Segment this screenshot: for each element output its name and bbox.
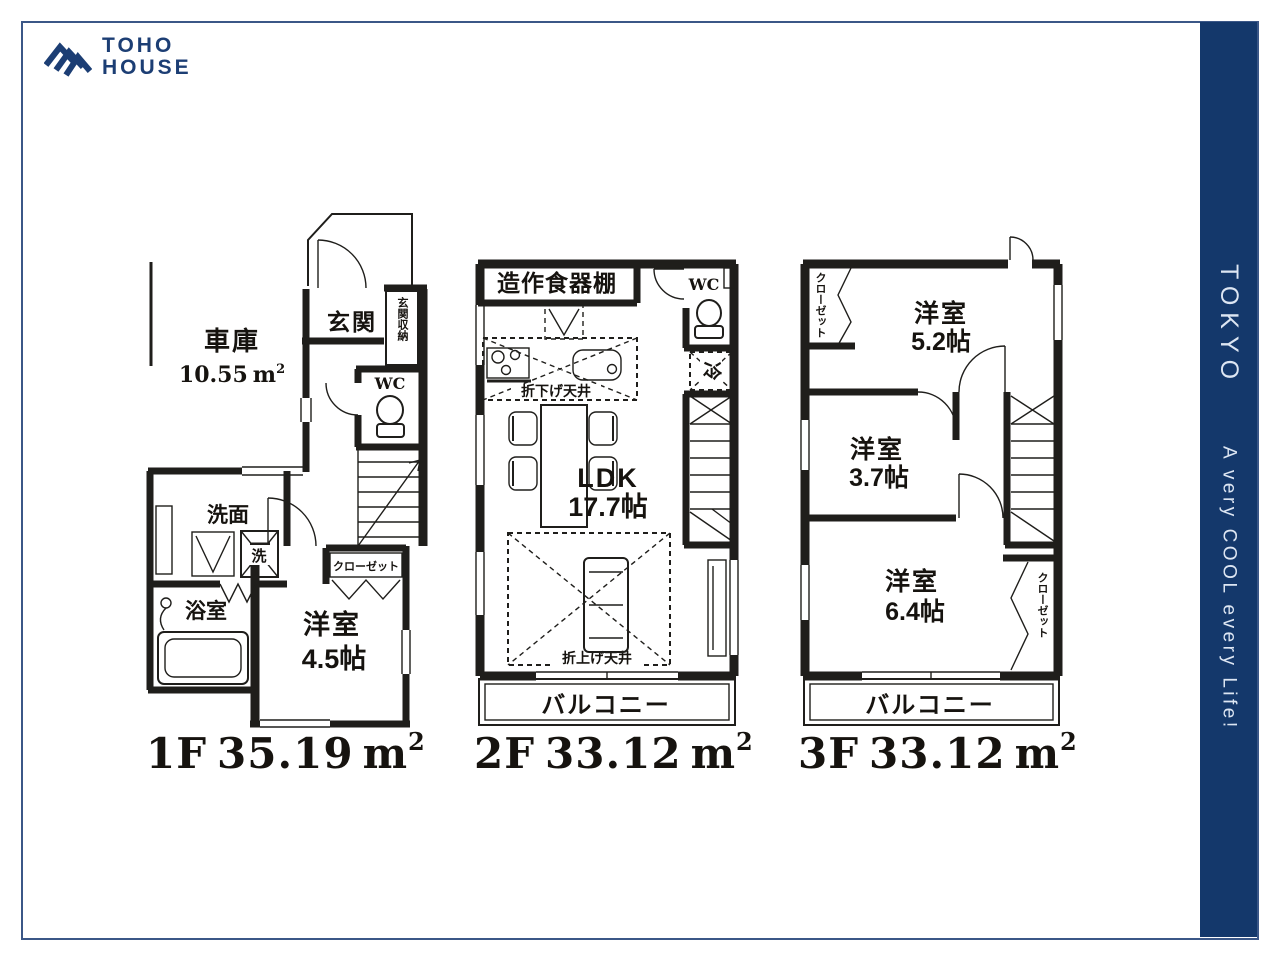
closet-bottom-label: クローゼット	[1036, 572, 1049, 638]
room64-size: 6.4帖	[885, 598, 945, 626]
toilet-tank	[377, 424, 404, 437]
closet-top-label: クローゼット	[814, 272, 827, 338]
room52-label: 洋室	[914, 299, 968, 328]
closet-door-fold	[1011, 562, 1028, 670]
stairs-2f	[690, 396, 732, 541]
floor-plan-1f: 玄関収納 WC クローゼット 洗	[146, 214, 427, 778]
ldk-size-label: 17.7帖	[568, 492, 648, 522]
room37-size: 3.7帖	[849, 464, 909, 492]
counter-icon	[156, 506, 172, 574]
floor-plan-drawing: 玄関収納 WC クローゼット 洗	[0, 0, 1280, 960]
stairs-1f	[358, 447, 423, 546]
floor-plan-2f: 造作食器棚 WC 冷	[474, 264, 754, 778]
ldk-label: LDK	[577, 463, 639, 493]
balcony-label-2f: バルコニー	[541, 692, 671, 719]
room64-label: 洋室	[885, 567, 939, 596]
toilet-tank-2f	[695, 326, 723, 338]
balcony-3f: バルコニー	[804, 679, 1059, 725]
floor-3f-area-label: 3F33.12m2	[798, 727, 1078, 778]
doors-3f	[918, 346, 1005, 518]
bathroom-label: 浴室	[185, 599, 227, 623]
western-room-label: 洋室	[303, 609, 361, 640]
fridge-label: 冷	[701, 361, 724, 380]
closet-top-3f: クローゼット	[814, 268, 851, 345]
vanity-icon	[192, 532, 234, 576]
room-52-labels: 洋室 5.2帖	[911, 299, 971, 356]
washer-label: 洗	[251, 547, 266, 565]
floor-1f-area-label: 1F35.19m2	[146, 727, 426, 778]
room-37-labels: 洋室 3.7帖	[849, 435, 909, 492]
wc-1f: WC	[326, 374, 405, 437]
sofa-2f	[584, 558, 628, 652]
wc-2f: WC	[654, 268, 734, 338]
wc-label-2f: WC	[688, 275, 720, 294]
tv-board-icon	[708, 560, 726, 656]
stairs-3f	[1011, 396, 1054, 541]
washroom-label: 洗面	[207, 504, 249, 527]
entrance-storage-label: 玄関収納	[396, 296, 409, 342]
entrance-label: 玄関	[327, 309, 377, 335]
room52-size: 5.2帖	[911, 328, 971, 356]
closet-door-fold	[838, 268, 851, 345]
floor-plan-3f: クローゼット 洋室 5.2帖 洋室 3.7帖 洋室 6.	[798, 237, 1078, 778]
wc-door-arc	[326, 383, 358, 415]
room37-label: 洋室	[850, 435, 904, 464]
shower-icon	[161, 598, 171, 608]
raised-ceiling-2f: 折上げ天井	[508, 533, 670, 666]
room-64-labels: 洋室 6.4帖	[885, 567, 945, 626]
entrance-porch	[308, 214, 412, 288]
hall-door-1f	[268, 498, 316, 546]
closet-label: クローゼット	[333, 559, 399, 573]
kitchen-2f: 折下げ天井	[483, 305, 637, 400]
garage-label: 車庫	[204, 326, 260, 356]
toilet-icon	[377, 396, 403, 424]
garage-area-label: 10.55m2	[179, 362, 285, 388]
page: TOHO HOUSE TOKYO A very COOL every Life!	[0, 0, 1280, 960]
closet-door-fold	[332, 580, 400, 599]
western-room-size: 4.5帖	[302, 644, 367, 674]
western-room-1f: 洋室 4.5帖	[302, 609, 367, 674]
balcony-2f: バルコニー	[479, 679, 735, 725]
wc-door-arc-2f	[654, 269, 684, 299]
balcony-label-3f: バルコニー	[865, 692, 995, 719]
bathroom-1f: 浴室	[158, 598, 248, 684]
cupboard-label: 造作食器棚	[497, 270, 617, 296]
fridge-space-2f: 冷	[690, 352, 732, 390]
floor-2f-area-label: 2F33.12m2	[474, 727, 754, 778]
entrance-door-arc	[318, 240, 366, 288]
wc-label: WC	[374, 374, 406, 393]
toilet-icon-2f	[697, 300, 721, 326]
closet-bottom-3f: クローゼット	[1011, 562, 1049, 670]
roof-door-3f	[1010, 237, 1033, 260]
garage-1f: 車庫 10.55m2	[179, 326, 285, 388]
closet-1f: クローゼット	[330, 553, 402, 599]
entrance-storage-1f: 玄関収納	[386, 291, 418, 365]
ldk-labels: LDK 17.7帖	[568, 463, 648, 522]
lowered-ceiling-label: 折下げ天井	[521, 383, 591, 399]
